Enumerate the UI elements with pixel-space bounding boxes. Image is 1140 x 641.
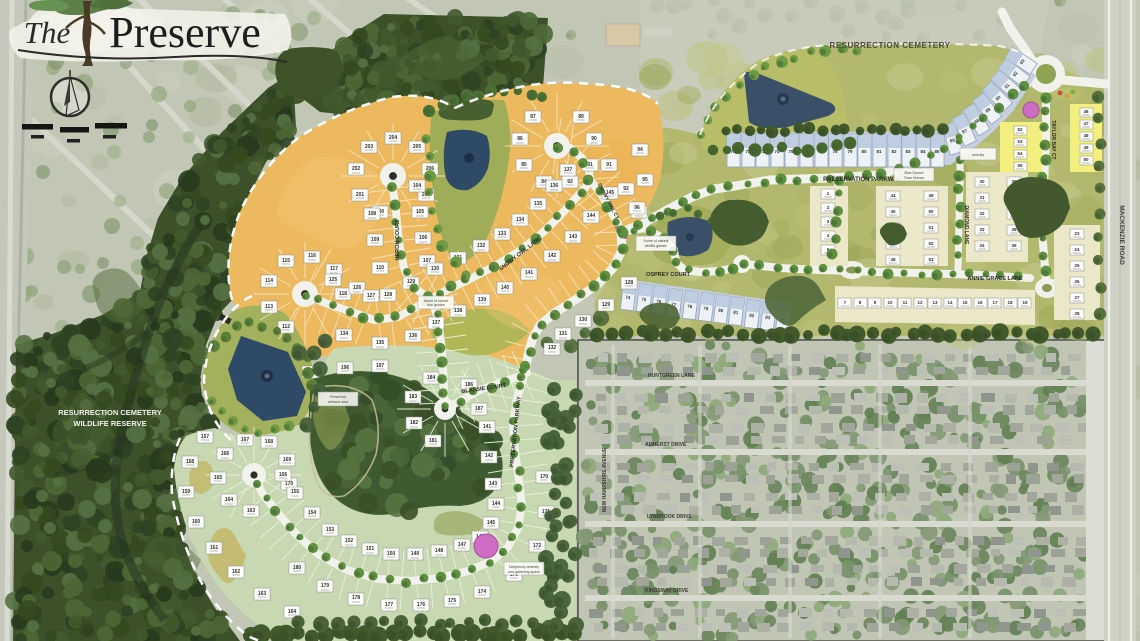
svg-text:196: 196 [341, 365, 350, 371]
svg-text:142: 142 [485, 453, 494, 459]
svg-text:178: 178 [352, 595, 361, 601]
svg-text:176: 176 [417, 602, 426, 608]
svg-text:82: 82 [891, 149, 897, 154]
svg-text:117: 117 [330, 266, 338, 272]
svg-text:85: 85 [521, 162, 527, 168]
svg-text:84: 84 [920, 149, 926, 154]
svg-text:105: 105 [416, 209, 425, 215]
svg-text:95: 95 [642, 177, 648, 183]
svg-text:126: 126 [353, 285, 362, 291]
svg-text:bus garden: bus garden [427, 303, 445, 307]
svg-text:205: 205 [413, 144, 422, 150]
svg-text:11: 11 [903, 300, 908, 305]
svg-text:Preserved: Preserved [330, 395, 346, 399]
svg-text:145: 145 [487, 520, 496, 526]
svg-text:amenity: amenity [972, 153, 985, 157]
svg-text:177: 177 [385, 602, 394, 608]
svg-text:83: 83 [905, 149, 911, 154]
svg-text:172: 172 [533, 543, 542, 549]
svg-text:94: 94 [637, 147, 643, 153]
svg-text:47: 47 [1083, 121, 1089, 126]
svg-text:17: 17 [992, 300, 998, 305]
svg-text:163: 163 [258, 591, 267, 597]
svg-text:130: 130 [579, 317, 588, 323]
svg-text:155: 155 [291, 489, 300, 495]
svg-text:wildlife garden: wildlife garden [645, 244, 667, 248]
svg-text:50: 50 [1083, 157, 1089, 162]
svg-text:52: 52 [928, 241, 934, 246]
svg-text:90: 90 [591, 136, 597, 142]
svg-text:166: 166 [221, 451, 230, 457]
svg-text:HUNTGREEN LANE: HUNTGREEN LANE [648, 373, 695, 379]
svg-text:135: 135 [376, 340, 385, 346]
svg-text:34: 34 [979, 243, 985, 248]
svg-text:15: 15 [962, 300, 968, 305]
svg-text:125: 125 [329, 277, 338, 283]
svg-text:161: 161 [210, 545, 219, 551]
svg-text:48: 48 [1083, 133, 1089, 138]
svg-text:150: 150 [387, 551, 396, 557]
svg-text:174: 174 [478, 589, 487, 595]
svg-text:164: 164 [288, 609, 297, 615]
svg-text:44: 44 [890, 193, 896, 198]
svg-text:80: 80 [861, 149, 867, 154]
svg-text:26: 26 [1074, 279, 1080, 284]
svg-text:151: 151 [366, 546, 375, 552]
svg-text:182: 182 [410, 420, 419, 426]
svg-text:13: 13 [932, 300, 938, 305]
svg-text:28: 28 [1074, 311, 1080, 316]
svg-text:204: 204 [389, 135, 398, 141]
svg-text:Town Homes: Town Homes [904, 176, 924, 180]
svg-text:45: 45 [890, 209, 896, 214]
svg-text:85: 85 [934, 149, 940, 154]
svg-text:14: 14 [947, 300, 953, 305]
svg-text:147: 147 [458, 542, 467, 548]
svg-text:NEW HAMPSHIRE AVENUE: NEW HAMPSHIRE AVENUE [602, 447, 608, 512]
svg-text:HERON COURT: HERON COURT [395, 219, 401, 261]
svg-text:27: 27 [1074, 295, 1080, 300]
svg-text:OSPREY COURT: OSPREY COURT [646, 272, 691, 278]
svg-text:79: 79 [847, 149, 853, 154]
svg-text:128: 128 [384, 292, 393, 298]
svg-text:179: 179 [321, 583, 330, 589]
svg-text:148: 148 [435, 548, 444, 554]
svg-text:18: 18 [1007, 300, 1013, 305]
svg-text:160: 160 [192, 519, 201, 525]
svg-text:140: 140 [501, 285, 510, 291]
svg-text:144: 144 [587, 213, 596, 219]
svg-text:167: 167 [241, 437, 250, 443]
svg-text:108: 108 [368, 211, 377, 217]
svg-text:202: 202 [352, 166, 361, 172]
svg-text:143: 143 [569, 234, 578, 240]
svg-text:184: 184 [427, 375, 436, 381]
svg-text:RESURRECTION CEMETERY: RESURRECTION CEMETERY [830, 41, 951, 50]
svg-text:152: 152 [345, 538, 354, 544]
svg-text:170: 170 [285, 481, 294, 487]
svg-text:138: 138 [454, 308, 463, 314]
svg-text:50: 50 [928, 209, 934, 214]
svg-text:131: 131 [559, 331, 568, 337]
svg-text:55: 55 [1017, 163, 1023, 168]
svg-text:157: 157 [201, 434, 210, 440]
svg-text:31: 31 [979, 195, 985, 200]
svg-text:DIAMOND LANE: DIAMOND LANE [963, 206, 969, 246]
svg-text:165: 165 [214, 475, 223, 481]
svg-text:139: 139 [478, 297, 487, 303]
svg-text:136: 136 [409, 333, 418, 339]
svg-text:and gathering space: and gathering space [508, 570, 540, 574]
svg-text:110: 110 [376, 265, 384, 271]
svg-text:24: 24 [1074, 247, 1080, 252]
svg-text:169: 169 [283, 457, 292, 463]
svg-text:143: 143 [489, 481, 498, 487]
svg-text:141: 141 [525, 270, 534, 276]
svg-text:159: 159 [182, 489, 191, 495]
svg-text:135: 135 [534, 201, 543, 207]
svg-text:51: 51 [928, 225, 934, 230]
svg-text:118: 118 [339, 291, 347, 297]
svg-text:89: 89 [578, 114, 584, 120]
svg-text:Home of natural: Home of natural [644, 239, 669, 243]
svg-text:127: 127 [367, 293, 376, 299]
svg-text:136: 136 [550, 183, 559, 189]
svg-text:46: 46 [1083, 109, 1089, 114]
svg-text:39: 39 [1011, 243, 1017, 248]
svg-text:130: 130 [431, 266, 440, 272]
svg-text:TAYLOR BAY CT: TAYLOR BAY CT [1050, 120, 1056, 159]
svg-text:AMHERST DRIVE: AMHERST DRIVE [645, 442, 687, 448]
svg-text:134: 134 [340, 331, 349, 337]
svg-text:WILDLIFE RESERVE: WILDLIFE RESERVE [73, 419, 146, 428]
svg-text:92: 92 [623, 186, 629, 192]
svg-text:92: 92 [567, 179, 573, 185]
svg-text:48: 48 [890, 257, 896, 262]
svg-text:132: 132 [477, 243, 486, 249]
svg-text:156: 156 [279, 472, 288, 478]
svg-text:KINGSWAY DRIVE: KINGSWAY DRIVE [645, 588, 689, 594]
svg-text:197: 197 [376, 363, 385, 369]
svg-text:19: 19 [1022, 300, 1028, 305]
svg-text:168: 168 [265, 439, 274, 445]
svg-text:23: 23 [1074, 231, 1080, 236]
svg-text:116: 116 [308, 253, 316, 259]
svg-text:10: 10 [887, 300, 893, 305]
svg-text:164: 164 [225, 497, 234, 503]
svg-text:53: 53 [1017, 139, 1023, 144]
svg-text:54: 54 [1017, 151, 1023, 156]
svg-text:109: 109 [371, 237, 380, 243]
svg-text:104: 104 [413, 183, 422, 189]
svg-text:30: 30 [979, 179, 985, 184]
svg-text:87: 87 [530, 114, 536, 120]
svg-text:137: 137 [564, 167, 573, 173]
svg-text:137: 137 [432, 320, 441, 326]
svg-text:115: 115 [282, 258, 290, 264]
svg-text:25: 25 [1074, 263, 1080, 268]
svg-text:175: 175 [448, 598, 457, 604]
svg-text:RESURRECTION CEMETERY: RESURRECTION CEMETERY [58, 408, 161, 417]
svg-text:154: 154 [308, 510, 317, 516]
svg-text:113: 113 [265, 304, 273, 310]
svg-text:129: 129 [602, 302, 611, 308]
svg-text:181: 181 [429, 438, 438, 444]
svg-text:149: 149 [411, 551, 420, 557]
svg-text:32: 32 [979, 211, 985, 216]
svg-text:201: 201 [356, 192, 365, 198]
svg-text:142: 142 [548, 253, 557, 259]
svg-text:128: 128 [625, 280, 634, 286]
svg-text:91: 91 [587, 162, 593, 168]
svg-text:180: 180 [293, 565, 302, 571]
svg-text:Neighborly amenity: Neighborly amenity [509, 565, 539, 569]
svg-text:53: 53 [928, 257, 934, 262]
svg-text:96: 96 [634, 205, 640, 211]
svg-text:33: 33 [979, 227, 985, 232]
svg-text:12: 12 [917, 300, 923, 305]
svg-text:91: 91 [606, 162, 612, 168]
svg-text:wetland area: wetland area [328, 400, 348, 404]
svg-text:52: 52 [1017, 127, 1023, 132]
svg-text:81: 81 [876, 149, 882, 154]
svg-text:MACKENZIE ROAD: MACKENZIE ROAD [1118, 205, 1125, 265]
svg-text:162: 162 [232, 569, 241, 575]
svg-text:183: 183 [409, 394, 418, 400]
svg-text:141: 141 [483, 424, 492, 430]
svg-text:112: 112 [282, 324, 290, 330]
svg-text:153: 153 [326, 527, 335, 533]
svg-text:38: 38 [1011, 227, 1017, 232]
svg-text:The: The [24, 15, 71, 50]
svg-text:49: 49 [928, 193, 934, 198]
svg-text:ANNIE GRACE LANE: ANNIE GRACE LANE [967, 276, 1022, 282]
svg-text:106: 106 [419, 235, 428, 241]
svg-text:Preserve: Preserve [109, 8, 261, 57]
svg-text:187: 187 [475, 406, 484, 412]
svg-text:LYNBROOK DRIVE: LYNBROOK DRIVE [647, 514, 692, 520]
svg-text:133: 133 [498, 231, 507, 237]
svg-text:203: 203 [365, 144, 374, 150]
svg-text:134: 134 [516, 217, 525, 223]
svg-text:Blue Spruce: Blue Spruce [904, 171, 923, 175]
svg-text:49: 49 [1083, 145, 1089, 150]
svg-text:86: 86 [517, 136, 523, 142]
svg-text:144: 144 [492, 501, 501, 507]
svg-text:132: 132 [548, 345, 557, 351]
svg-text:170: 170 [540, 474, 549, 480]
svg-text:PRESERVATION PARKWAY: PRESERVATION PARKWAY [823, 177, 901, 183]
svg-text:16: 16 [977, 300, 983, 305]
svg-text:163: 163 [247, 508, 256, 514]
svg-text:114: 114 [265, 278, 273, 284]
svg-text:158: 158 [186, 459, 195, 465]
